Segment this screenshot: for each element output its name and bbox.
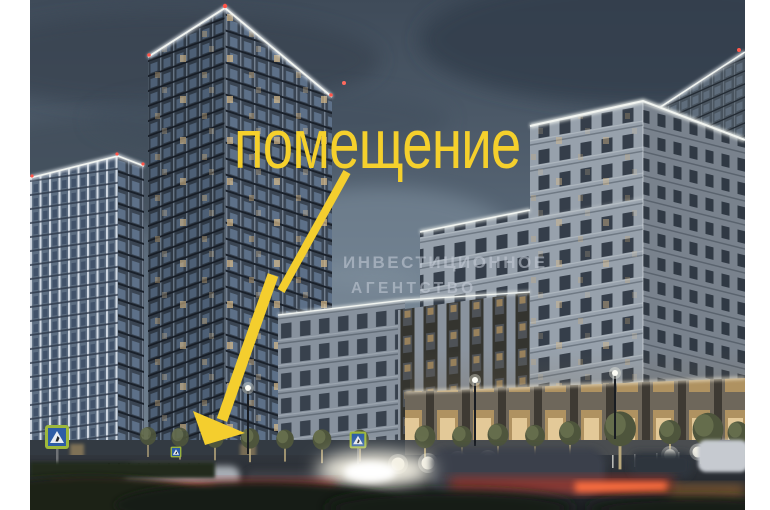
watermark-line1: ИНВЕСТИЦИОННОЕ (343, 250, 548, 276)
aviation-light (223, 4, 227, 8)
screenshot-canvas: ИНВЕСТИЦИОННОЕ АГЕНТСТВО помещение (0, 0, 770, 510)
aviation-light (115, 152, 118, 155)
aviation-light (141, 162, 144, 165)
white-van (698, 440, 745, 472)
left-tower (30, 152, 145, 460)
building-photo: ИНВЕСТИЦИОННОЕ АГЕНТСТВО помещение (30, 0, 745, 510)
agency-watermark: ИНВЕСТИЦИОННОЕ АГЕНТСТВО (343, 250, 548, 302)
watermark-line2: АГЕНТСТВО (351, 276, 548, 302)
pedestrian-crossing-sign (350, 432, 367, 449)
premises-annotation-text: помещение (234, 104, 521, 184)
pedestrian-crossing-sign (45, 425, 69, 449)
aviation-light (342, 81, 346, 85)
aviation-light (737, 48, 741, 52)
aviation-light (147, 53, 151, 57)
pedestrian-crossing-sign (171, 447, 182, 458)
blurred-car (630, 452, 692, 478)
aviation-light (30, 174, 33, 177)
aviation-light (329, 93, 333, 97)
